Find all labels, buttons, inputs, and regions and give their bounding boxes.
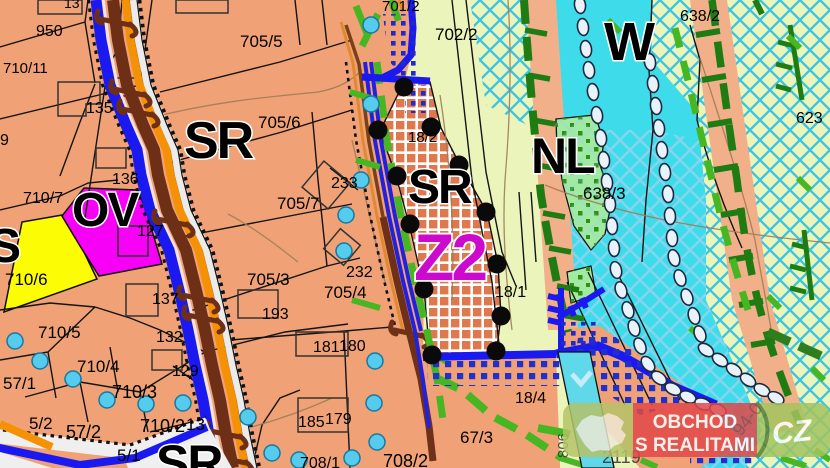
- svg-text:9: 9: [0, 132, 9, 149]
- svg-text:SR: SR: [156, 435, 223, 468]
- svg-text:5/2: 5/2: [29, 414, 53, 433]
- svg-text:705/5: 705/5: [240, 32, 283, 51]
- svg-text:57/2: 57/2: [66, 422, 101, 442]
- svg-text:705/3: 705/3: [247, 270, 290, 289]
- svg-text:18/1: 18/1: [495, 284, 526, 301]
- svg-text:NL: NL: [531, 128, 594, 184]
- svg-text:57/1: 57/1: [3, 374, 36, 393]
- svg-text:S: S: [0, 220, 20, 273]
- svg-text:67/3: 67/3: [460, 428, 493, 447]
- svg-text:129: 129: [172, 363, 199, 380]
- svg-text:638/3: 638/3: [583, 184, 626, 203]
- svg-text:623: 623: [796, 110, 823, 127]
- svg-text:W: W: [604, 12, 655, 72]
- svg-text:710/4: 710/4: [77, 357, 120, 376]
- svg-text:705/6: 705/6: [258, 113, 301, 132]
- svg-text:13: 13: [186, 415, 205, 434]
- svg-text:705/4: 705/4: [324, 283, 367, 302]
- svg-text:950: 950: [36, 23, 63, 40]
- svg-text:5/1: 5/1: [117, 446, 141, 465]
- svg-text:13: 13: [64, 0, 80, 11]
- svg-text:135: 135: [86, 100, 113, 117]
- svg-text:S REALITAMI: S REALITAMI: [635, 435, 755, 456]
- svg-text:OV: OV: [72, 184, 139, 237]
- svg-text:127: 127: [137, 223, 164, 240]
- svg-text:710/7: 710/7: [23, 190, 63, 207]
- svg-text:Z2: Z2: [414, 220, 486, 294]
- svg-text:701/2: 701/2: [382, 0, 420, 15]
- svg-text:710/2: 710/2: [140, 416, 185, 436]
- svg-text:CZ: CZ: [770, 414, 815, 451]
- svg-text:232: 232: [346, 264, 373, 281]
- svg-text:708/1: 708/1: [300, 455, 340, 468]
- svg-text:137: 137: [152, 291, 179, 308]
- svg-text:710/5: 710/5: [38, 323, 81, 342]
- svg-text:638/2: 638/2: [680, 8, 720, 25]
- svg-text:179: 179: [325, 411, 352, 428]
- svg-text:708/2: 708/2: [383, 451, 428, 468]
- svg-text:233: 233: [331, 175, 358, 192]
- svg-text:180: 180: [339, 338, 366, 355]
- svg-text:SR: SR: [184, 112, 254, 170]
- svg-text:18/4: 18/4: [515, 390, 546, 407]
- svg-text:181: 181: [313, 339, 340, 356]
- svg-text:18/2: 18/2: [408, 129, 437, 146]
- svg-text:OBCHOD: OBCHOD: [653, 412, 737, 433]
- svg-text:710/3: 710/3: [112, 382, 157, 402]
- svg-text:710/11: 710/11: [3, 60, 48, 77]
- svg-text:SR: SR: [408, 161, 472, 214]
- svg-text:705/7: 705/7: [277, 194, 320, 213]
- svg-text:185: 185: [298, 414, 325, 431]
- svg-text:193: 193: [262, 306, 289, 323]
- svg-text:132: 132: [156, 329, 183, 346]
- svg-text:702/2: 702/2: [435, 25, 478, 44]
